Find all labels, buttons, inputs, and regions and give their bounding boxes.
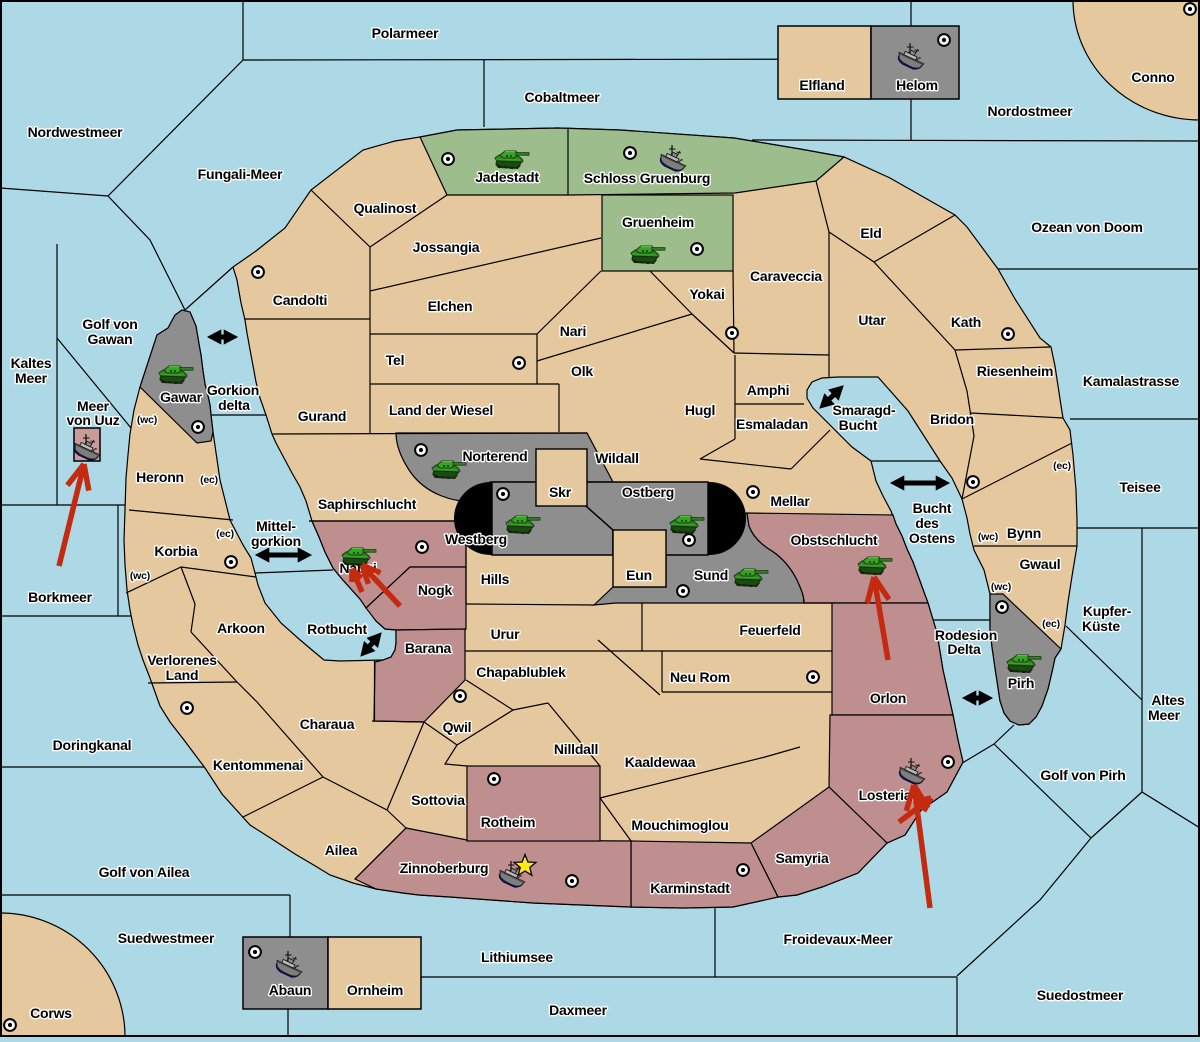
svg-text:(ec): (ec) — [200, 474, 218, 486]
svg-text:Golf von: Golf von — [82, 316, 137, 332]
svg-text:(ec): (ec) — [216, 528, 234, 540]
svg-text:Amphi: Amphi — [747, 382, 790, 398]
svg-text:Karminstadt: Karminstadt — [650, 880, 730, 896]
svg-text:(wc): (wc) — [137, 414, 157, 426]
svg-text:Zinnoberburg: Zinnoberburg — [400, 860, 489, 876]
svg-text:Meer: Meer — [1148, 707, 1181, 723]
svg-text:Barana: Barana — [405, 640, 452, 656]
svg-text:Rotheim: Rotheim — [481, 814, 536, 830]
svg-text:Hugl: Hugl — [685, 402, 715, 418]
svg-text:Tel: Tel — [386, 352, 405, 368]
svg-text:Hills: Hills — [481, 571, 510, 587]
svg-text:Wildall: Wildall — [595, 450, 639, 466]
svg-text:Ostberg: Ostberg — [622, 484, 674, 500]
svg-text:Golf von Pirh: Golf von Pirh — [1040, 767, 1125, 783]
svg-text:Gruenheim: Gruenheim — [622, 214, 694, 230]
svg-text:Sottovia: Sottovia — [411, 792, 465, 808]
svg-text:Jadestadt: Jadestadt — [475, 169, 539, 185]
svg-text:Sund: Sund — [694, 567, 728, 583]
svg-text:(ec): (ec) — [1053, 460, 1071, 472]
svg-text:Smaragd-: Smaragd- — [833, 402, 897, 418]
svg-text:Kaaldewaa: Kaaldewaa — [625, 754, 696, 770]
svg-text:Altes: Altes — [1151, 692, 1185, 708]
svg-text:Bucht: Bucht — [913, 500, 952, 516]
svg-text:gorkion: gorkion — [251, 533, 301, 549]
svg-text:Kath: Kath — [951, 314, 981, 330]
svg-text:Samyria: Samyria — [775, 850, 828, 866]
svg-text:Caraveccia: Caraveccia — [750, 268, 822, 284]
svg-text:Corws: Corws — [30, 1005, 72, 1021]
svg-text:Ornheim: Ornheim — [347, 982, 403, 998]
svg-text:Skr: Skr — [549, 484, 572, 500]
svg-text:Nogk: Nogk — [418, 582, 453, 598]
svg-text:Daxmeer: Daxmeer — [549, 1002, 608, 1018]
svg-text:Rotbucht: Rotbucht — [307, 621, 367, 637]
svg-text:Delta: Delta — [947, 641, 981, 657]
svg-text:Helom: Helom — [896, 77, 938, 93]
svg-text:(wc): (wc) — [991, 581, 1011, 593]
svg-text:Teisee: Teisee — [1119, 479, 1161, 495]
svg-text:Polarmeer: Polarmeer — [372, 25, 439, 41]
svg-text:(wc): (wc) — [130, 570, 150, 582]
svg-text:Lithiumsee: Lithiumsee — [481, 949, 553, 965]
svg-text:Eun: Eun — [626, 567, 652, 583]
svg-text:Conno: Conno — [1131, 69, 1174, 85]
svg-text:Froidevaux-Meer: Froidevaux-Meer — [783, 931, 893, 947]
svg-text:Mittel-: Mittel- — [256, 518, 296, 534]
svg-text:Schloss Gruenburg: Schloss Gruenburg — [584, 170, 711, 186]
svg-text:Charaua: Charaua — [300, 716, 355, 732]
svg-text:Fungali-Meer: Fungali-Meer — [198, 166, 283, 182]
svg-text:Bucht: Bucht — [839, 417, 878, 433]
svg-text:Kamalastrasse: Kamalastrasse — [1083, 373, 1180, 389]
svg-text:Nari: Nari — [560, 323, 586, 339]
svg-text:Neu Rom: Neu Rom — [670, 669, 730, 685]
svg-text:Kaltes: Kaltes — [11, 355, 52, 371]
svg-text:Qualinost: Qualinost — [354, 200, 417, 216]
svg-text:Mouchimoglou: Mouchimoglou — [631, 817, 728, 833]
svg-text:Losteria: Losteria — [859, 787, 912, 803]
svg-text:Gwaul: Gwaul — [1019, 556, 1060, 572]
svg-text:Eld: Eld — [860, 225, 881, 241]
svg-text:Gurand: Gurand — [298, 408, 347, 424]
svg-text:Land der Wiesel: Land der Wiesel — [389, 402, 493, 418]
svg-text:Cobaltmeer: Cobaltmeer — [524, 89, 600, 105]
svg-text:Urur: Urur — [491, 626, 521, 642]
svg-text:Mellar: Mellar — [770, 493, 810, 509]
svg-text:Land: Land — [166, 667, 199, 683]
svg-text:Utar: Utar — [858, 312, 886, 328]
svg-text:Golf von Ailea: Golf von Ailea — [99, 864, 190, 880]
svg-text:Chapablublek: Chapablublek — [476, 664, 566, 680]
svg-text:des: des — [915, 515, 939, 531]
svg-text:Obstschlucht: Obstschlucht — [790, 532, 878, 548]
svg-text:Elchen: Elchen — [428, 298, 473, 314]
svg-text:Gawar: Gawar — [160, 389, 203, 405]
svg-text:Ozean von Doom: Ozean von Doom — [1031, 219, 1143, 235]
svg-text:Olk: Olk — [571, 363, 593, 379]
svg-text:(ec): (ec) — [1042, 618, 1060, 630]
svg-text:Orlon: Orlon — [870, 690, 906, 706]
svg-text:Riesenheim: Riesenheim — [977, 363, 1054, 379]
svg-text:Heronn: Heronn — [136, 469, 184, 485]
svg-text:Westberg: Westberg — [445, 531, 507, 547]
svg-text:Ostens: Ostens — [909, 530, 956, 546]
svg-text:Suedostmeer: Suedostmeer — [1037, 987, 1124, 1003]
svg-text:Saphirschlucht: Saphirschlucht — [318, 496, 417, 512]
svg-text:Candolti: Candolti — [273, 292, 327, 308]
svg-text:Suedwestmeer: Suedwestmeer — [118, 930, 215, 946]
svg-text:Nilldall: Nilldall — [554, 741, 598, 757]
svg-text:Bynn: Bynn — [1007, 525, 1041, 541]
svg-text:Gorkion: Gorkion — [207, 382, 259, 398]
svg-text:Abaun: Abaun — [269, 982, 312, 998]
svg-text:Jossangia: Jossangia — [413, 239, 480, 255]
svg-text:Yokai: Yokai — [689, 286, 724, 302]
svg-text:Norterend: Norterend — [462, 448, 527, 464]
svg-text:Feuerfeld: Feuerfeld — [739, 622, 800, 638]
svg-text:Ailea: Ailea — [325, 842, 358, 858]
svg-text:delta: delta — [218, 397, 250, 413]
svg-text:Borkmeer: Borkmeer — [28, 589, 93, 605]
svg-text:Esmaladan: Esmaladan — [736, 416, 808, 432]
svg-text:(wc): (wc) — [978, 531, 998, 543]
svg-text:Gawan: Gawan — [88, 331, 133, 347]
svg-text:Kupfer-: Kupfer- — [1083, 603, 1132, 619]
svg-text:Arkoon: Arkoon — [217, 620, 265, 636]
svg-text:Kentommenai: Kentommenai — [213, 757, 303, 773]
svg-text:Pirh: Pirh — [1008, 675, 1034, 691]
svg-text:Korbia: Korbia — [154, 543, 198, 559]
svg-text:Elfland: Elfland — [799, 77, 844, 93]
svg-text:Doringkanal: Doringkanal — [53, 737, 132, 753]
svg-text:Bridon: Bridon — [930, 411, 974, 427]
svg-text:Meer: Meer — [15, 370, 48, 386]
svg-text:Küste: Küste — [1082, 618, 1120, 634]
svg-text:Nordwestmeer: Nordwestmeer — [28, 124, 124, 140]
svg-text:Nordostmeer: Nordostmeer — [988, 103, 1074, 119]
svg-text:Qwil: Qwil — [443, 719, 472, 735]
svg-text:von Uuz: von Uuz — [66, 412, 119, 428]
svg-text:Verlorenes: Verlorenes — [147, 652, 217, 668]
